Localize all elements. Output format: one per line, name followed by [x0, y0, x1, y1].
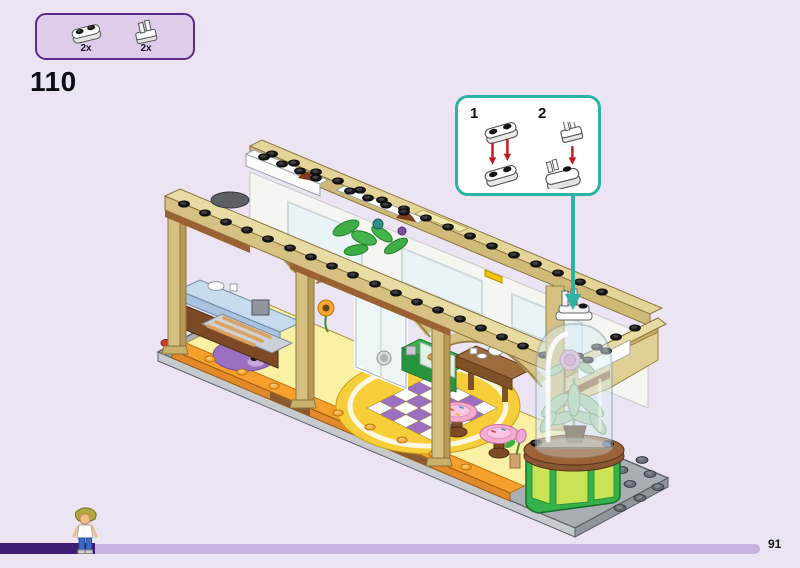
satellite-dish [211, 192, 249, 208]
espresso-machine [252, 300, 269, 315]
glass-dome [536, 324, 612, 458]
part-qty-label: 2x [140, 44, 151, 54]
minidoll-progress-figure [68, 505, 102, 555]
plate-1x1-clip-white-icon [128, 19, 164, 44]
instruction-page: 2x 2x 110 1 [0, 0, 800, 568]
part-item-1: 2x [66, 19, 106, 54]
plate-1x2-round-white-icon [66, 19, 106, 44]
part-qty-label: 2x [80, 44, 91, 54]
lego-model-illustration [150, 110, 675, 540]
step-number: 110 [30, 66, 77, 98]
page-number: 91 [768, 537, 798, 551]
progress-bar-track [95, 544, 760, 554]
parts-panel: 2x 2x [35, 13, 195, 60]
part-item-2: 2x [128, 19, 164, 54]
